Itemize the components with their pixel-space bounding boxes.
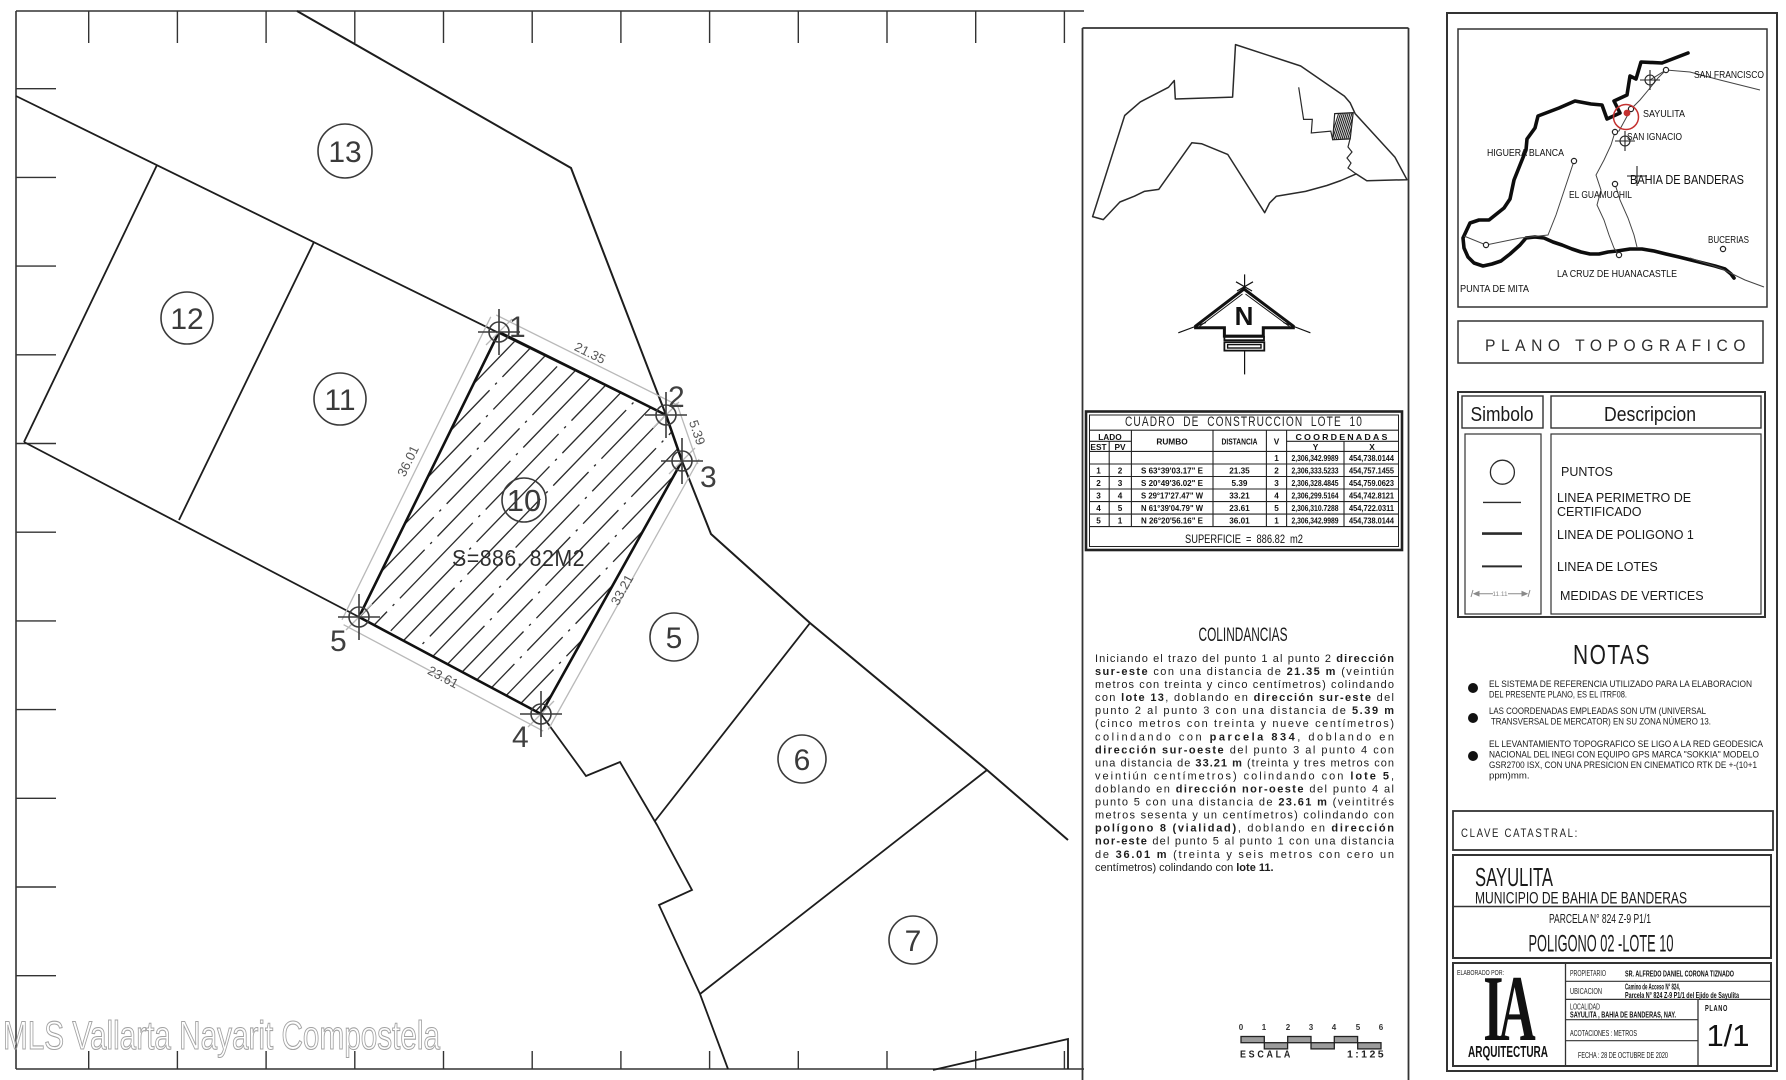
svg-text:veintiún centímetros) colindan: veintiún centímetros) colindando con lot… xyxy=(1095,771,1394,783)
svg-text:4: 4 xyxy=(1332,1023,1337,1032)
svg-text:SAN FRANCISCO: SAN FRANCISCO xyxy=(1694,70,1764,81)
svg-text:SUPERFICIE = 886.82 m2: SUPERFICIE = 886.82 m2 xyxy=(1185,534,1303,546)
svg-text:S 29°17'27.47" W: S 29°17'27.47" W xyxy=(1141,492,1203,501)
svg-text:454,759.0623: 454,759.0623 xyxy=(1349,479,1394,488)
svg-text:UBICACION: UBICACION xyxy=(1570,987,1602,996)
svg-text:1: 1 xyxy=(1274,454,1279,463)
svg-text:36.01: 36.01 xyxy=(1229,517,1250,526)
svg-text:centímetros) colindando con lo: centímetros) colindando con lote 11. xyxy=(1095,862,1274,874)
svg-text:SAYULITA: SAYULITA xyxy=(1475,862,1553,892)
svg-text:N 26°20'56.16" E: N 26°20'56.16" E xyxy=(1141,517,1204,526)
svg-text:LADO: LADO xyxy=(1098,432,1122,442)
svg-text:5: 5 xyxy=(1274,504,1279,513)
svg-text:LA CRUZ DE HUANACASTLE: LA CRUZ DE HUANACASTLE xyxy=(1557,269,1677,280)
svg-text:21.35: 21.35 xyxy=(572,339,608,367)
svg-text:2,306,342.9989: 2,306,342.9989 xyxy=(1292,517,1339,526)
svg-text:EL GUAMUCHIL: EL GUAMUCHIL xyxy=(1569,190,1632,201)
svg-text:SAN IGNACIO: SAN IGNACIO xyxy=(1627,132,1682,143)
svg-text:PARCELA N° 824 Z-9 P1/1: PARCELA N° 824 Z-9 P1/1 xyxy=(1549,911,1651,926)
svg-text:EST: EST xyxy=(1090,442,1106,452)
svg-text:21.35: 21.35 xyxy=(1229,467,1250,476)
svg-text:doblando en dirección nor-oest: doblando en dirección nor-oeste del punt… xyxy=(1095,784,1394,796)
svg-text:5: 5 xyxy=(666,622,683,655)
svg-text:5.39: 5.39 xyxy=(1232,479,1248,488)
svg-text:2,306,299.5164: 2,306,299.5164 xyxy=(1292,492,1339,501)
svg-text:PV: PV xyxy=(1114,442,1126,452)
svg-text:11.11: 11.11 xyxy=(1492,591,1508,598)
svg-text:COORDENADAS: COORDENADAS xyxy=(1296,432,1390,442)
svg-text:454,742.8121: 454,742.8121 xyxy=(1349,492,1394,501)
svg-text:3: 3 xyxy=(1096,492,1101,501)
svg-text:ppm)mm.: ppm)mm. xyxy=(1489,771,1530,782)
svg-text:Y: Y xyxy=(1313,442,1319,452)
svg-text:SR. ALFREDO DANIEL CORONA TIZN: SR. ALFREDO DANIEL CORONA TIZNADO xyxy=(1625,969,1734,979)
svg-text:3: 3 xyxy=(1309,1023,1314,1032)
svg-text:2,306,342.9989: 2,306,342.9989 xyxy=(1292,454,1339,463)
svg-text:N: N xyxy=(1235,301,1254,331)
svg-text:454,738.0144: 454,738.0144 xyxy=(1349,517,1394,526)
svg-text:454,757.1455: 454,757.1455 xyxy=(1349,467,1394,476)
svg-text:dirección sur-oeste del punto: dirección sur-oeste del punto 3 al punto… xyxy=(1095,744,1394,756)
svg-text:4: 4 xyxy=(1118,492,1123,501)
svg-text:1/1: 1/1 xyxy=(1706,1018,1749,1053)
svg-text:MLS Vallarta Nayarit Compostel: MLS Vallarta Nayarit Compostela xyxy=(3,1014,441,1058)
svg-text:1: 1 xyxy=(1274,517,1279,526)
svg-text:de 36.01 m (treinta y seis met: de 36.01 m (treinta y seis metros con ce… xyxy=(1095,849,1394,861)
svg-text:33.21: 33.21 xyxy=(1229,492,1250,501)
svg-text:NACIONAL DEL INEGI CON EQUIPO: NACIONAL DEL INEGI CON EQUIPO GPS MARCA … xyxy=(1489,750,1759,761)
svg-text:1: 1 xyxy=(1118,517,1123,526)
svg-text:FECHA : 28 DE OCTUBRE DE 202: FECHA : 28 DE OCTUBRE DE 2020 xyxy=(1578,1050,1668,1060)
svg-text:2: 2 xyxy=(668,381,685,414)
svg-text:5: 5 xyxy=(1096,517,1101,526)
svg-text:COLINDANCIAS: COLINDANCIAS xyxy=(1199,625,1288,646)
svg-text:V: V xyxy=(1274,437,1280,447)
svg-text:5: 5 xyxy=(1356,1023,1361,1032)
svg-text:PLANO TOPOGRAFICO: PLANO TOPOGRAFICO xyxy=(1485,336,1751,355)
svg-text:454,722.0311: 454,722.0311 xyxy=(1349,504,1394,513)
svg-text:LAS COORDENADAS EMPLEADAS SON: LAS COORDENADAS EMPLEADAS SON UTM (UNIVE… xyxy=(1489,706,1707,717)
svg-text:LINEA PERIMETRO DE: LINEA PERIMETRO DE xyxy=(1557,491,1691,505)
svg-text:S 63°39'03.17" E: S 63°39'03.17" E xyxy=(1141,467,1204,476)
svg-text:colindando con parcela 834, do: colindando con parcela 834, doblando en xyxy=(1095,731,1394,743)
svg-text:2,306,328.4845: 2,306,328.4845 xyxy=(1292,479,1339,488)
svg-text:metros sesenta y un centímetro: metros sesenta y un centímetros) colinda… xyxy=(1095,810,1394,822)
svg-text:1: 1 xyxy=(1262,1023,1267,1032)
svg-text:ESCALA: ESCALA xyxy=(1240,1049,1293,1061)
svg-text:HIGUERA BLANCA: HIGUERA BLANCA xyxy=(1487,148,1564,159)
svg-text:5: 5 xyxy=(1118,504,1123,513)
svg-text:EL SISTEMA DE REFERENCIA UTILI: EL SISTEMA DE REFERENCIA UTILIZADO PARA … xyxy=(1489,679,1752,690)
svg-text:PUNTOS: PUNTOS xyxy=(1561,465,1613,479)
svg-text:PROPIETARIO: PROPIETARIO xyxy=(1570,969,1606,978)
svg-text:11: 11 xyxy=(324,384,355,417)
svg-text:Descripcion: Descripcion xyxy=(1604,404,1696,426)
svg-text:13: 13 xyxy=(328,136,361,169)
svg-text:LINEA DE LOTES: LINEA DE LOTES xyxy=(1557,560,1658,574)
svg-text:Simbolo: Simbolo xyxy=(1471,404,1534,426)
svg-text:MUNICIPIO DE BAHIA DE BANDERAS: MUNICIPIO DE BAHIA DE BANDERAS xyxy=(1475,890,1687,908)
svg-text:0: 0 xyxy=(1239,1023,1244,1032)
svg-text:con lote 13, doblando en direc: con lote 13, doblando en dirección sur-e… xyxy=(1095,692,1394,704)
svg-text:LINEA DE POLIGONO 1: LINEA DE POLIGONO 1 xyxy=(1557,528,1694,542)
svg-text:454,738.0144: 454,738.0144 xyxy=(1349,454,1394,463)
svg-text:6: 6 xyxy=(1379,1023,1384,1032)
svg-text:CLAVE CATASTRAL:: CLAVE CATASTRAL: xyxy=(1461,828,1579,840)
svg-text:POLIGONO 02 -LOTE 10: POLIGONO 02 -LOTE 10 xyxy=(1529,931,1674,958)
svg-text:23.61: 23.61 xyxy=(1229,504,1250,513)
svg-text:TRANSVERSAL DE MERCATOR) EN SU: TRANSVERSAL DE MERCATOR) EN SU ZONA NÚME… xyxy=(1491,717,1711,728)
svg-text:1: 1 xyxy=(509,311,526,344)
svg-text:DEL PRESENTE PLANO, ES EL ITRF: DEL PRESENTE PLANO, ES EL ITRF08. xyxy=(1489,690,1627,701)
svg-text:36.01: 36.01 xyxy=(394,443,422,479)
svg-text:PLANO: PLANO xyxy=(1705,1003,1728,1013)
svg-text:punto 2 al punto 3 con una dis: punto 2 al punto 3 con una distancia de … xyxy=(1095,705,1394,717)
svg-text:X: X xyxy=(1369,442,1375,452)
svg-text:polígono 8 (vialidad), dobland: polígono 8 (vialidad), doblando en direc… xyxy=(1095,823,1394,835)
svg-text:Iniciando el trazo del punto 1: Iniciando el trazo del punto 1 al punto … xyxy=(1095,653,1394,665)
svg-text:1:125: 1:125 xyxy=(1347,1049,1386,1061)
svg-text:2,306,333.5233: 2,306,333.5233 xyxy=(1292,467,1339,476)
svg-text:RUMBO: RUMBO xyxy=(1156,437,1188,447)
svg-text:S=886. 82M2: S=886. 82M2 xyxy=(452,545,585,571)
svg-text:7: 7 xyxy=(905,925,922,958)
svg-text:punto 5 con una distancia de 2: punto 5 con una distancia de 23.61 m (ve… xyxy=(1095,797,1395,809)
svg-text:N 61°39'04.79" W: N 61°39'04.79" W xyxy=(1141,504,1203,513)
svg-text:3: 3 xyxy=(700,461,717,494)
svg-text:ACOTACIONES : METROS: ACOTACIONES : METROS xyxy=(1570,1028,1637,1038)
svg-text:una distancia de 33.21 m (trei: una distancia de 33.21 m (treinta y tres… xyxy=(1095,757,1394,769)
svg-text:2: 2 xyxy=(1274,467,1279,476)
svg-text:MEDIDAS DE VERTICES: MEDIDAS DE VERTICES xyxy=(1560,589,1704,603)
svg-text:EL LEVANTAMIENTO TOPOGRAFICO: EL LEVANTAMIENTO TOPOGRAFICO SE LIGO A L… xyxy=(1489,739,1764,750)
svg-text:sur-este con una distancia de: sur-este con una distancia de 21.35 m (v… xyxy=(1095,666,1394,678)
svg-text:6: 6 xyxy=(794,744,811,777)
svg-text:Parcela N° 824 Z-9 P1/1 del Ej: Parcela N° 824 Z-9 P1/1 del Ejido de Say… xyxy=(1625,991,1739,1000)
svg-text:ARQUITECTURA: ARQUITECTURA xyxy=(1468,1044,1548,1061)
svg-text:4: 4 xyxy=(1274,492,1279,501)
svg-text:12: 12 xyxy=(170,303,203,336)
svg-text:nor-este del punto 5 al punto: nor-este del punto 5 al punto 1 con una … xyxy=(1095,836,1395,848)
svg-text:4: 4 xyxy=(512,721,529,754)
svg-text:2,306,310.7288: 2,306,310.7288 xyxy=(1292,504,1339,513)
svg-text:SAYULITA: SAYULITA xyxy=(1643,109,1685,120)
svg-text:2: 2 xyxy=(1096,479,1101,488)
svg-text:10: 10 xyxy=(507,483,541,518)
svg-text:1: 1 xyxy=(1096,467,1101,476)
svg-text:BUCERIAS: BUCERIAS xyxy=(1708,235,1749,246)
svg-text:3: 3 xyxy=(1274,479,1279,488)
svg-text:BAHIA DE BANDERAS: BAHIA DE BANDERAS xyxy=(1630,172,1744,187)
svg-text:5: 5 xyxy=(330,625,347,658)
svg-text:4: 4 xyxy=(1096,504,1101,513)
svg-text:(cinco metros con treinta y nu: (cinco metros con treinta y nueve centím… xyxy=(1095,718,1394,730)
svg-text:2: 2 xyxy=(1286,1023,1291,1032)
svg-text:2: 2 xyxy=(1118,467,1123,476)
svg-text:Camino de Acceso N° 824,: Camino de Acceso N° 824, xyxy=(1625,983,1680,992)
svg-text:NOTAS: NOTAS xyxy=(1573,639,1651,670)
svg-text:CUADRO DE CONSTRUCCION LOTE 10: CUADRO DE CONSTRUCCION LOTE 10 xyxy=(1125,414,1363,429)
svg-text:metros con treinta y cinco cen: metros con treinta y cinco centímetros) … xyxy=(1095,679,1394,691)
svg-text:CERTIFICADO: CERTIFICADO xyxy=(1557,505,1642,519)
svg-text:3: 3 xyxy=(1118,479,1123,488)
svg-text:SAYULITA , BAHIA DE BANDERAS,: SAYULITA , BAHIA DE BANDERAS, NAY. xyxy=(1570,1010,1676,1020)
svg-text:S 20°49'36.02" E: S 20°49'36.02" E xyxy=(1141,479,1204,488)
svg-text:DISTANCIA: DISTANCIA xyxy=(1222,437,1258,447)
svg-text:PUNTA DE MITA: PUNTA DE MITA xyxy=(1460,284,1529,295)
svg-text:5.39: 5.39 xyxy=(686,418,708,447)
svg-text:33.21: 33.21 xyxy=(608,572,637,608)
svg-text:GSR2700 ISX, CON UNA PRESICION: GSR2700 ISX, CON UNA PRESICION EN CINEMA… xyxy=(1489,760,1757,771)
